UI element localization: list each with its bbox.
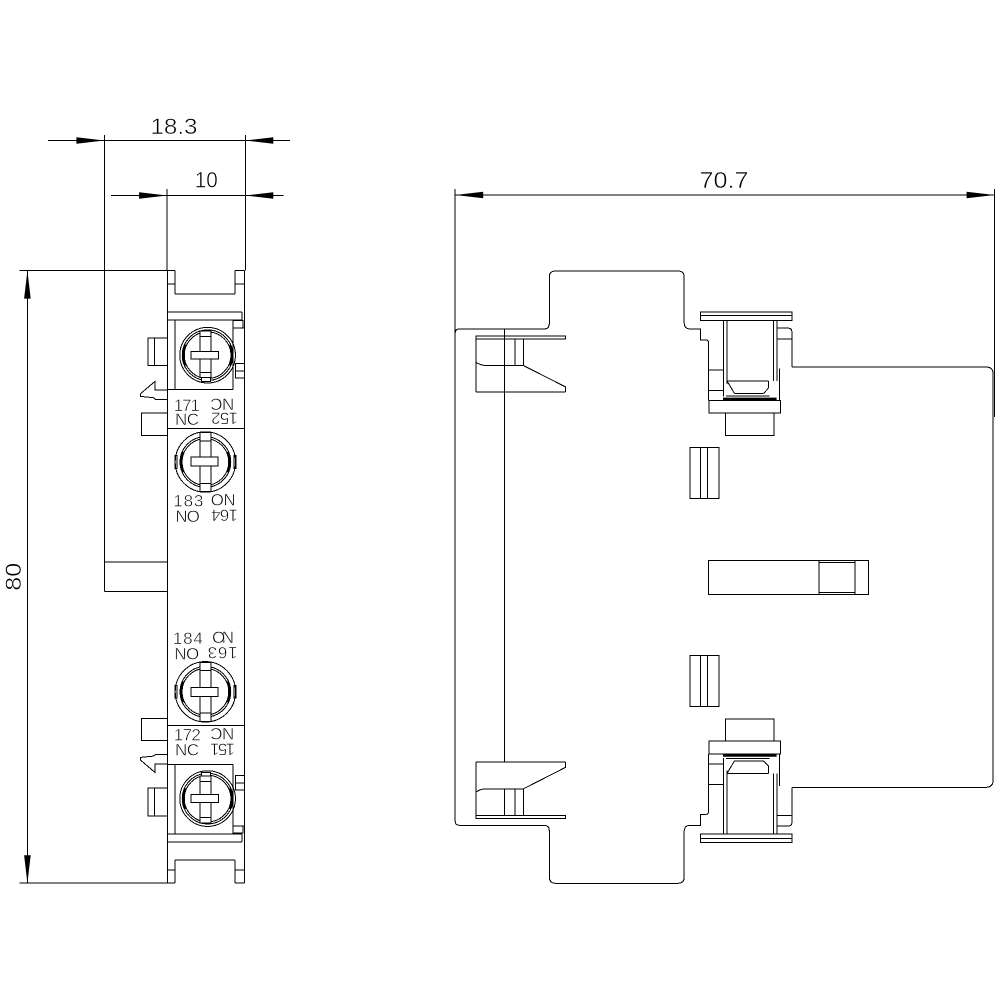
svg-text:NO: NO: [175, 507, 200, 526]
svg-text:164: 164: [211, 506, 238, 525]
svg-text:70.7: 70.7: [700, 167, 749, 193]
svg-text:NC: NC: [175, 741, 199, 760]
svg-text:NO: NO: [174, 644, 199, 663]
svg-text:NC: NC: [175, 410, 199, 429]
svg-text:10: 10: [195, 168, 218, 193]
svg-text:163: 163: [208, 643, 238, 662]
svg-text:18.3: 18.3: [151, 114, 198, 139]
svg-text:152: 152: [211, 408, 238, 427]
svg-text:151: 151: [210, 739, 235, 758]
svg-text:80: 80: [1, 563, 26, 591]
